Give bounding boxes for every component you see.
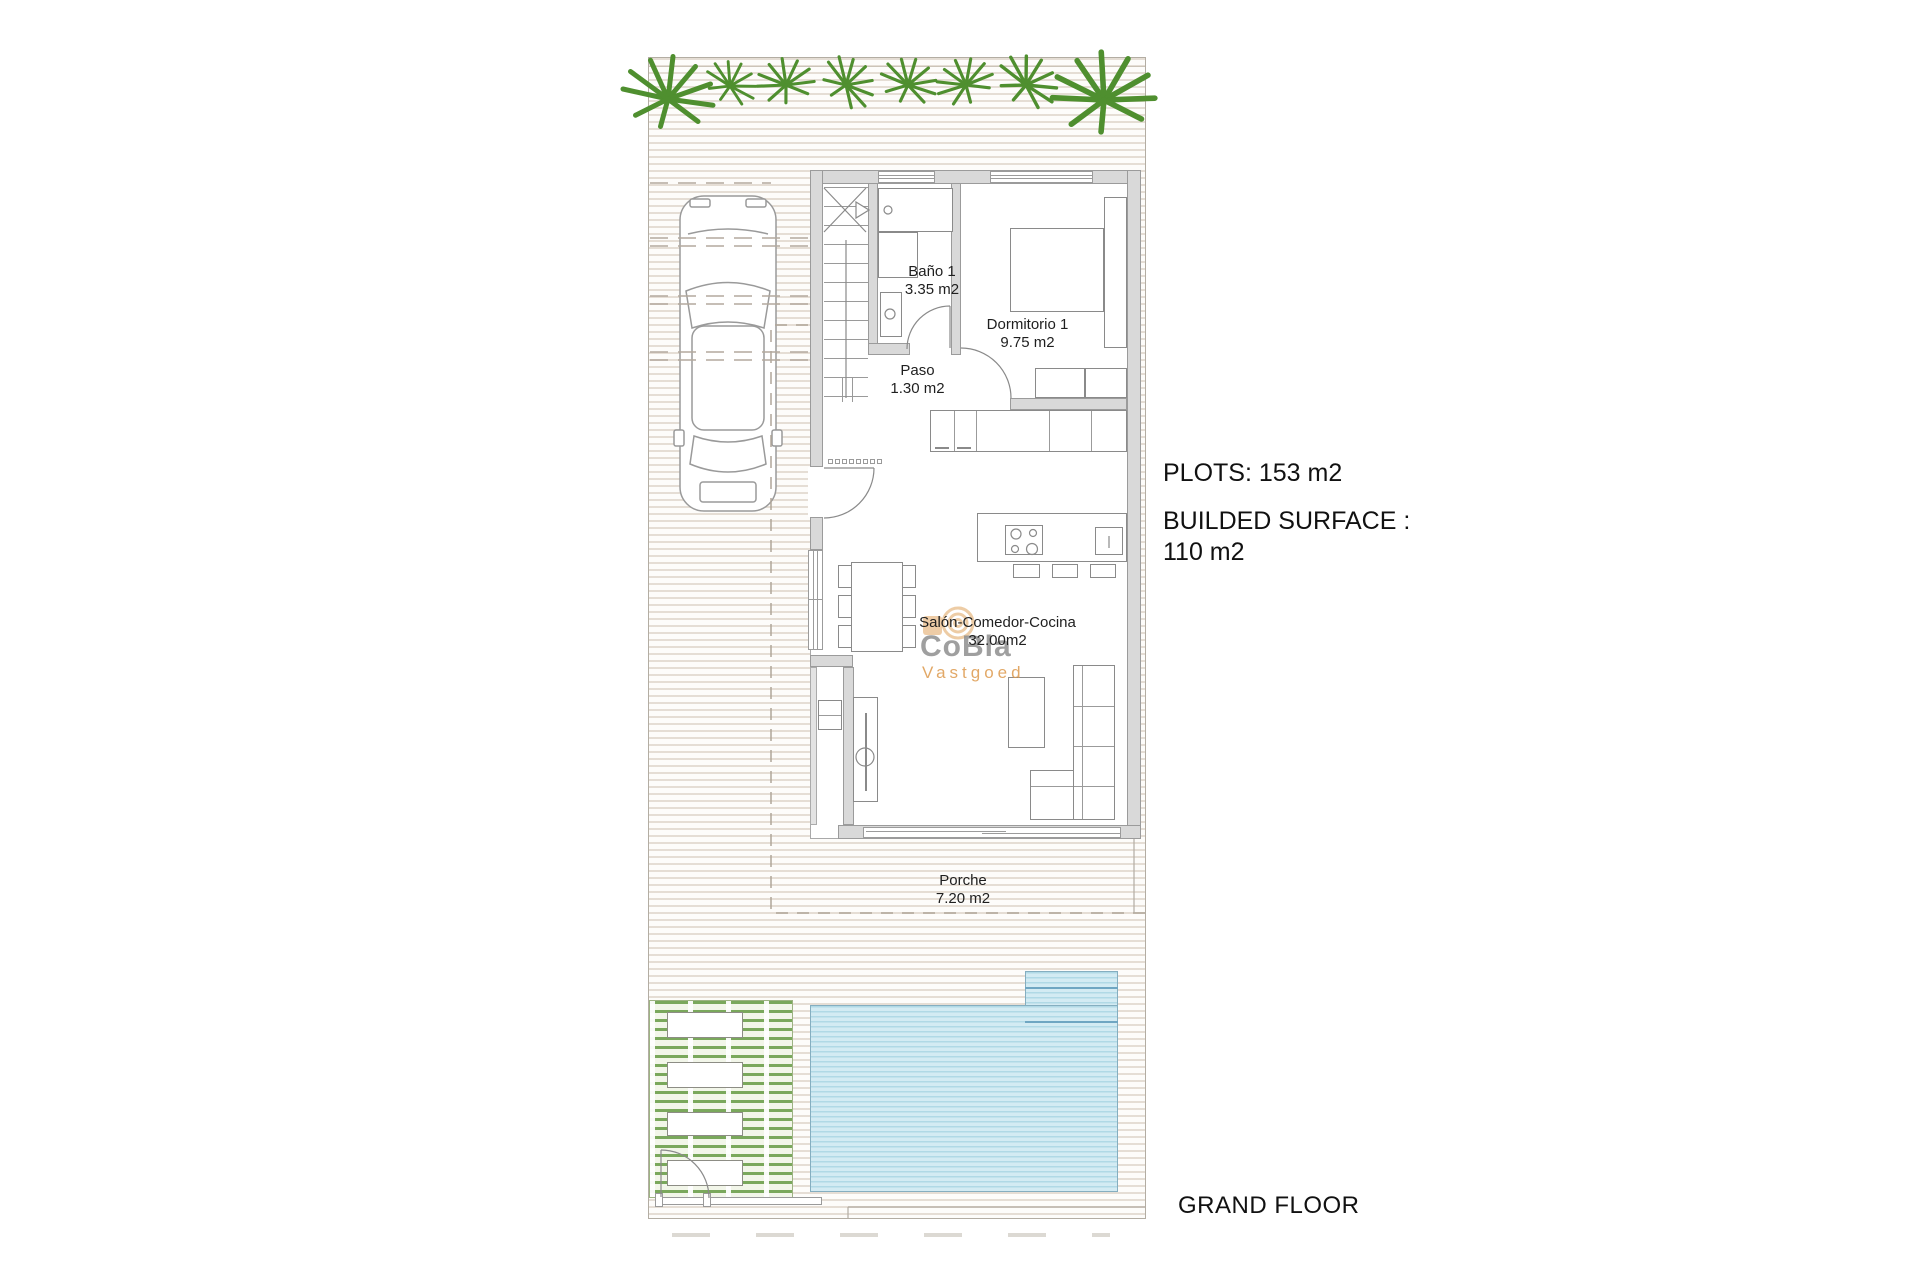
wall-bedroom-bottom	[1010, 398, 1127, 410]
kitchen-counter	[930, 410, 1127, 452]
builded-surface-line2: 110 m2	[1163, 537, 1410, 568]
wall-right	[1127, 170, 1141, 839]
staircase	[824, 187, 868, 401]
stool	[1013, 564, 1040, 578]
room-label-porche: Porche 7.20 m2	[915, 872, 1011, 908]
room-name: Porche	[915, 872, 1011, 890]
threshold-dot	[870, 459, 875, 464]
chair	[838, 595, 852, 618]
garden-planter	[667, 1160, 743, 1186]
sofa	[1073, 665, 1115, 820]
wardrobe	[1085, 368, 1127, 398]
floor-title: GRAND FLOOR	[1178, 1192, 1360, 1220]
bed	[1010, 228, 1104, 312]
chair	[838, 565, 852, 588]
bedroom-window	[990, 171, 1093, 183]
room-name: Baño 1	[877, 263, 987, 281]
stair-landing-divider	[842, 378, 853, 402]
stool	[1090, 564, 1116, 578]
gate-post	[655, 1193, 663, 1207]
room-area: 7.20 m2	[915, 890, 1011, 908]
shower-tray	[878, 188, 953, 232]
swimming-pool	[810, 1005, 1118, 1192]
cooktop	[1005, 525, 1043, 555]
room-label-dormitorio: Dormitorio 1 9.75 m2	[965, 316, 1090, 352]
room-label-bano: Baño 1 3.35 m2	[877, 263, 987, 299]
sliding-door	[863, 827, 1121, 838]
builded-surface-annotation: BUILDED SURFACE : 110 m2	[1163, 506, 1410, 568]
tv-unit	[853, 697, 878, 802]
side-screen-wall	[810, 667, 817, 825]
garden-planter	[667, 1012, 743, 1038]
garden-planter	[667, 1062, 743, 1088]
watermark-subtitle: Vastgoed	[922, 663, 1025, 683]
threshold-dot	[849, 459, 854, 464]
entrance-opening	[808, 467, 824, 517]
front-fence	[661, 1197, 822, 1205]
chair	[838, 625, 852, 648]
stool	[1052, 564, 1078, 578]
room-name: Salón-Comedor-Cocina	[905, 614, 1090, 632]
terrace-inner-line	[649, 66, 1145, 67]
wardrobe	[1035, 368, 1085, 398]
bedside-unit	[1104, 197, 1127, 348]
wall-bath-bottom	[868, 343, 910, 355]
threshold-dot	[828, 459, 833, 464]
room-label-salon: Salón-Comedor-Cocina 32.00m2	[905, 614, 1090, 650]
room-area: 1.30 m2	[870, 380, 965, 398]
wall-left-jog	[810, 655, 853, 667]
ac-unit	[818, 700, 842, 730]
room-label-paso: Paso 1.30 m2	[870, 362, 965, 398]
threshold-dot	[856, 459, 861, 464]
room-area: 3.35 m2	[877, 281, 987, 299]
gate-post	[703, 1193, 711, 1207]
wall-left-upper	[810, 170, 823, 467]
garden-planter	[667, 1112, 743, 1136]
island-sink	[1095, 527, 1123, 555]
threshold-dot	[877, 459, 882, 464]
sofa-chaise	[1030, 770, 1074, 820]
builded-surface-line1: BUILDED SURFACE :	[1163, 506, 1410, 537]
wall-left-mid	[810, 517, 823, 550]
living-window-left	[808, 550, 823, 650]
threshold-dot	[835, 459, 840, 464]
plots-annotation: PLOTS: 153 m2	[1163, 458, 1342, 489]
threshold-dot	[842, 459, 847, 464]
room-name: Paso	[870, 362, 965, 380]
room-area: 32.00m2	[905, 632, 1090, 650]
room-area: 9.75 m2	[965, 334, 1090, 352]
room-name: Dormitorio 1	[965, 316, 1090, 334]
dining-table	[851, 562, 903, 652]
coffee-table	[1008, 677, 1045, 748]
chair	[902, 565, 916, 588]
threshold-dot	[863, 459, 868, 464]
bathroom-window	[878, 171, 935, 183]
